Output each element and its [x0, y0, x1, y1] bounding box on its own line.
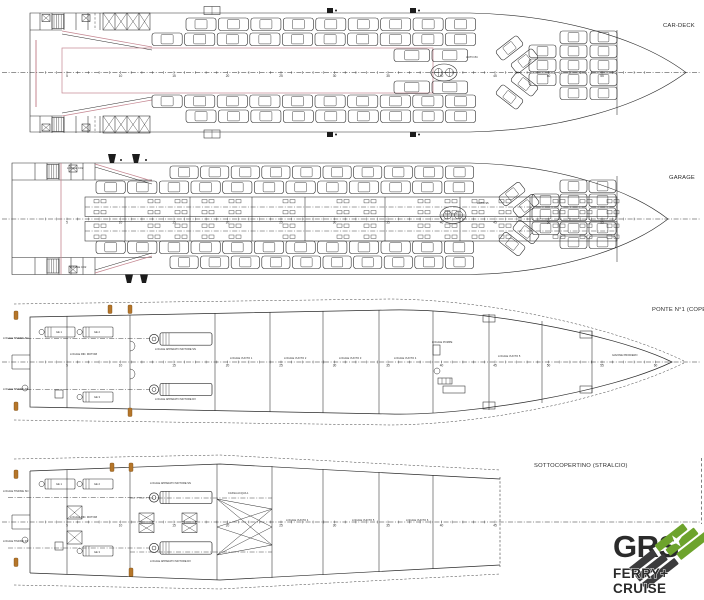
svg-text:30: 30	[333, 221, 337, 225]
svg-text:45: 45	[493, 221, 497, 225]
car	[262, 166, 290, 179]
svg-text:10: 10	[119, 524, 123, 528]
svg-text:20: 20	[226, 221, 230, 225]
svg-text:GE 2: GE 2	[94, 330, 100, 334]
car	[354, 166, 382, 179]
car	[529, 45, 556, 58]
svg-text:LOCALE VUOTO 5: LOCALE VUOTO 5	[352, 518, 375, 522]
svg-text:15: 15	[172, 221, 176, 225]
car	[529, 73, 556, 86]
svg-text:LOCALE CO2: LOCALE CO2	[67, 166, 84, 170]
svg-text:50: 50	[547, 221, 551, 225]
car	[250, 33, 280, 46]
car	[217, 33, 247, 46]
car	[432, 81, 468, 94]
svg-text:50: 50	[547, 364, 551, 368]
car	[498, 231, 526, 256]
car	[348, 110, 378, 123]
svg-text:GE 3: GE 3	[94, 395, 100, 399]
car	[170, 256, 198, 269]
svg-text:LOCALE POMPE: LOCALE POMPE	[432, 340, 453, 344]
svg-text:5: 5	[66, 221, 68, 225]
car	[590, 45, 617, 58]
svg-text:LOCALE TIMONE SN: LOCALE TIMONE SN	[3, 336, 28, 340]
car	[394, 81, 430, 94]
car	[445, 95, 475, 108]
car	[590, 59, 617, 72]
car	[560, 45, 587, 58]
car	[529, 59, 556, 72]
car	[315, 95, 345, 108]
car	[560, 59, 587, 72]
svg-text:LOCALE VUOTO 1: LOCALE VUOTO 1	[230, 356, 253, 360]
car	[446, 18, 476, 31]
car	[283, 110, 313, 123]
svg-text:55: 55	[600, 221, 604, 225]
car	[560, 194, 587, 207]
svg-text:20: 20	[226, 364, 230, 368]
svg-text:GE 1: GE 1	[56, 330, 62, 334]
car	[413, 181, 442, 194]
svg-text:LOCALE TIMONE DX: LOCALE TIMONE DX	[3, 387, 29, 391]
svg-text:LOCALE APPARATO MOTORE SN: LOCALE APPARATO MOTORE SN	[155, 347, 196, 351]
car	[262, 256, 290, 269]
car	[394, 49, 430, 62]
car	[218, 110, 248, 123]
svg-text:45: 45	[493, 364, 497, 368]
svg-text:CASSA ACQUA 1: CASSA ACQUA 1	[228, 491, 249, 495]
car	[186, 110, 216, 123]
car	[152, 95, 182, 108]
svg-text:55: 55	[600, 74, 604, 78]
car	[223, 241, 252, 254]
svg-text:60: 60	[654, 364, 658, 368]
svg-text:10: 10	[119, 74, 123, 78]
car	[191, 181, 220, 194]
svg-text:5: 5	[66, 524, 68, 528]
car	[380, 33, 410, 46]
car	[231, 256, 259, 269]
car	[186, 18, 216, 31]
logo-line1-text: FERRY+	[613, 566, 669, 581]
svg-text:30: 30	[333, 74, 337, 78]
car	[354, 256, 382, 269]
svg-text:GE 3: GE 3	[94, 550, 100, 554]
svg-text:35: 35	[386, 221, 390, 225]
car	[413, 33, 443, 46]
car	[432, 49, 468, 62]
car	[323, 256, 351, 269]
car	[413, 110, 443, 123]
car	[445, 256, 473, 269]
car	[589, 208, 616, 221]
car	[316, 110, 346, 123]
svg-text:LOCALE APPARATO MOTORE DX: LOCALE APPARATO MOTORE DX	[150, 559, 191, 563]
car	[231, 166, 259, 179]
svg-text:LOCALE RID. MOTORI: LOCALE RID. MOTORI	[70, 515, 97, 519]
car	[384, 256, 412, 269]
logo-grs-ferry-cruise: GRS FERRY+ CRUISE	[613, 516, 704, 596]
svg-text:LOCALE APPARATO MOTORE SN: LOCALE APPARATO MOTORE SN	[150, 481, 191, 485]
car	[348, 18, 378, 31]
svg-text:10: 10	[119, 364, 123, 368]
logo-line2-text: CRUISE	[613, 581, 666, 596]
car	[217, 95, 247, 108]
svg-text:25: 25	[279, 524, 283, 528]
svg-text:40: 40	[440, 74, 444, 78]
car	[185, 33, 215, 46]
car	[590, 87, 617, 100]
svg-text:LOCALE RID. MOTORI: LOCALE RID. MOTORI	[70, 352, 97, 356]
car	[381, 110, 411, 123]
car	[170, 166, 198, 179]
car	[381, 241, 410, 254]
car	[348, 33, 378, 46]
car	[560, 208, 587, 221]
svg-text:GE 2: GE 2	[94, 482, 100, 486]
car	[223, 181, 252, 194]
car	[286, 181, 315, 194]
ship-deck-plan: AUTO 84510152025303540455055 AUTO 95LOCA…	[0, 0, 704, 600]
car	[532, 208, 559, 221]
car	[218, 18, 248, 31]
car	[96, 241, 125, 254]
svg-text:50: 50	[547, 74, 551, 78]
svg-text:GE 1: GE 1	[56, 482, 62, 486]
car	[251, 18, 281, 31]
car	[348, 95, 378, 108]
svg-text:25: 25	[279, 364, 283, 368]
svg-text:10: 10	[119, 221, 123, 225]
svg-text:GAVONE PRODIERO: GAVONE PRODIERO	[612, 353, 637, 357]
svg-text:15: 15	[172, 364, 176, 368]
svg-text:40: 40	[440, 524, 444, 528]
svg-text:15: 15	[172, 524, 176, 528]
car	[381, 181, 410, 194]
svg-text:AUTO 95: AUTO 95	[477, 201, 489, 205]
car	[254, 181, 283, 194]
car	[282, 95, 312, 108]
car	[191, 241, 220, 254]
svg-text:55: 55	[600, 364, 604, 368]
car	[316, 18, 346, 31]
svg-text:45: 45	[493, 74, 497, 78]
car	[152, 33, 182, 46]
svg-text:LOCALE VUOTO 5: LOCALE VUOTO 5	[498, 354, 521, 358]
car	[96, 181, 125, 194]
car	[445, 166, 473, 179]
car	[444, 181, 473, 194]
svg-text:15: 15	[172, 74, 176, 78]
svg-text:LOCALE VUOTO 3: LOCALE VUOTO 3	[339, 356, 362, 360]
car	[282, 33, 312, 46]
svg-text:40: 40	[440, 364, 444, 368]
svg-text:25: 25	[279, 221, 283, 225]
svg-text:25: 25	[279, 74, 283, 78]
car	[413, 241, 442, 254]
car	[413, 18, 443, 31]
car	[415, 256, 443, 269]
car	[318, 181, 347, 194]
deck-car-deck: AUTO 84510152025303540455055	[2, 7, 700, 139]
svg-text:35: 35	[386, 74, 390, 78]
svg-text:LOCALE VUOTO 4: LOCALE VUOTO 4	[286, 518, 309, 522]
car	[498, 181, 526, 206]
car	[560, 180, 587, 193]
svg-text:5: 5	[66, 74, 68, 78]
deck-plan-drawing: AUTO 84510152025303540455055 AUTO 95LOCA…	[0, 0, 704, 600]
svg-text:35: 35	[386, 524, 390, 528]
car	[349, 181, 378, 194]
car	[384, 166, 412, 179]
svg-text:LOCALE TIMONE SN: LOCALE TIMONE SN	[3, 489, 28, 493]
deck-garage: AUTO 95LOCALE CO2LOCALE CO25101520253035…	[2, 154, 700, 283]
car	[381, 18, 411, 31]
svg-text:AUTO 84: AUTO 84	[466, 55, 478, 59]
car	[415, 166, 443, 179]
car	[159, 181, 188, 194]
car	[128, 181, 157, 194]
deck-title-car-deck: CAR-DECK	[663, 23, 695, 29]
svg-text:LOCALE VUOTO 4: LOCALE VUOTO 4	[394, 356, 417, 360]
car	[444, 241, 473, 254]
svg-text:35: 35	[386, 364, 390, 368]
car	[185, 95, 215, 108]
deck-title-ponte-n1: PONTE N°1 (COPE	[652, 307, 704, 313]
car	[560, 236, 587, 249]
car	[560, 31, 587, 44]
svg-text:30: 30	[333, 364, 337, 368]
car	[201, 166, 229, 179]
car	[286, 241, 315, 254]
deck-ponte-n1: LOCALE TIMONE SNLOCALE TIMONE DXGE 1GE 2…	[2, 299, 700, 425]
car	[445, 33, 475, 46]
car	[283, 18, 313, 31]
car	[254, 241, 283, 254]
car	[446, 110, 476, 123]
svg-text:LOCALE CO2: LOCALE CO2	[70, 265, 87, 269]
car	[292, 256, 320, 269]
car	[315, 33, 345, 46]
car	[318, 241, 347, 254]
svg-text:20: 20	[226, 524, 230, 528]
car	[560, 87, 587, 100]
car	[380, 95, 410, 108]
car	[292, 166, 320, 179]
deck-title-sottocopertino: SOTTOCOPERTINO (STRALCIO)	[534, 463, 628, 469]
car	[159, 241, 188, 254]
svg-text:LOCALE TIMONE DX: LOCALE TIMONE DX	[3, 539, 29, 543]
car	[250, 95, 280, 108]
svg-text:LOCALE VUOTO 2: LOCALE VUOTO 2	[284, 356, 307, 360]
svg-text:LOCALE APPARATO MOTORE DX: LOCALE APPARATO MOTORE DX	[155, 397, 196, 401]
car	[201, 256, 229, 269]
car	[413, 95, 443, 108]
car	[589, 180, 616, 193]
car	[251, 110, 281, 123]
car	[532, 194, 559, 207]
svg-text:45: 45	[493, 524, 497, 528]
car	[128, 241, 157, 254]
svg-text:40: 40	[440, 221, 444, 225]
deck-title-garage: GARAGE	[669, 175, 695, 181]
car	[323, 166, 351, 179]
svg-text:20: 20	[226, 74, 230, 78]
svg-text:5: 5	[66, 364, 68, 368]
car	[560, 73, 587, 86]
deck-sottocopertino: LOCALE TIMONE SNLOCALE TIMONE DXGE 1GE 2…	[2, 455, 700, 589]
car	[349, 241, 378, 254]
svg-text:30: 30	[333, 524, 337, 528]
